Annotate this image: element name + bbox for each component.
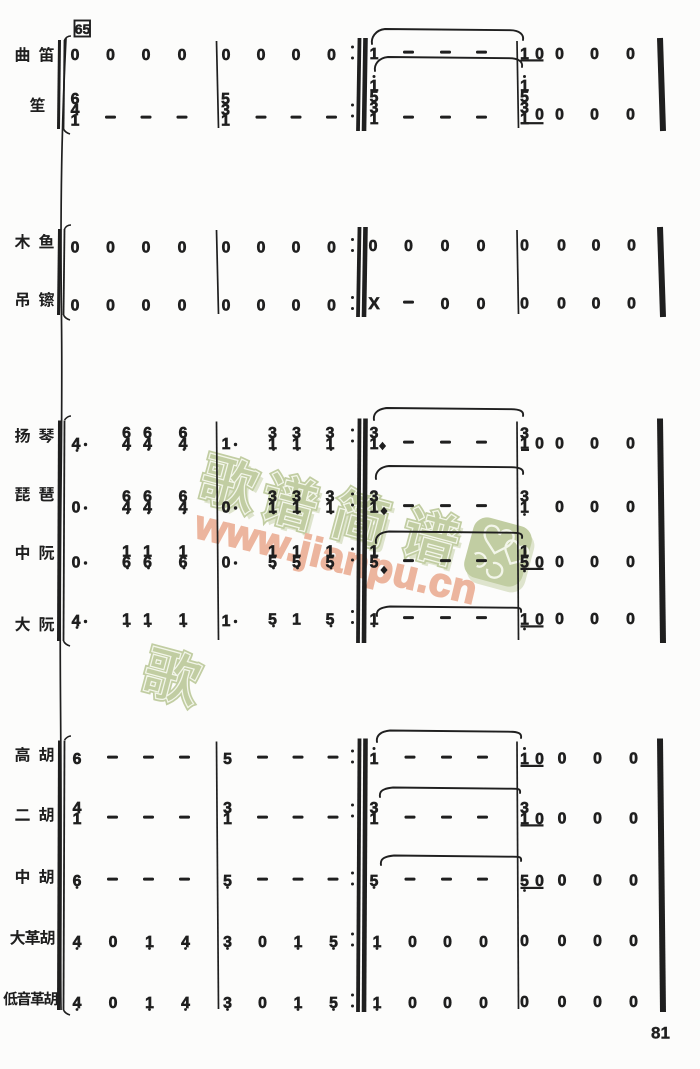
svg-text:0: 0 [555, 436, 564, 453]
svg-text:0: 0 [626, 46, 635, 63]
svg-text:0: 0 [408, 995, 417, 1012]
svg-text:0: 0 [178, 240, 187, 257]
svg-text:0: 0 [257, 47, 266, 64]
svg-text:6: 6 [143, 555, 152, 572]
svg-text:0: 0 [593, 873, 602, 890]
svg-text:0: 0 [477, 238, 486, 255]
svg-text:0: 0 [258, 934, 267, 951]
svg-text:0: 0 [109, 995, 118, 1012]
svg-text:0: 0 [555, 611, 564, 628]
svg-text:1: 1 [370, 436, 379, 453]
svg-text:0: 0 [292, 47, 301, 64]
svg-text:0: 0 [558, 994, 567, 1011]
svg-text:0: 0 [535, 555, 544, 572]
svg-text:0: 0 [441, 238, 450, 255]
svg-text:0: 0 [555, 499, 564, 516]
svg-text:0: 0 [627, 296, 636, 313]
svg-text:0: 0 [626, 107, 635, 124]
svg-text:1: 1 [223, 811, 232, 828]
svg-text:0: 0 [535, 436, 544, 453]
svg-text:0: 0 [593, 811, 602, 828]
svg-text:1: 1 [520, 111, 529, 128]
svg-text:0: 0 [557, 238, 566, 255]
svg-text:0: 0 [257, 240, 266, 257]
svg-text:0: 0 [222, 500, 231, 517]
svg-text:0: 0 [71, 240, 80, 257]
svg-text:4: 4 [179, 436, 188, 453]
svg-text:4: 4 [122, 500, 131, 517]
svg-text:0: 0 [592, 296, 601, 313]
svg-text:1: 1 [73, 811, 82, 828]
svg-text:0: 0 [72, 500, 81, 517]
svg-text:0: 0 [327, 240, 336, 257]
svg-text:0: 0 [71, 47, 80, 64]
svg-text:0: 0 [520, 933, 529, 950]
svg-text:1: 1 [370, 500, 379, 517]
svg-text:0: 0 [479, 995, 488, 1012]
svg-text:6: 6 [179, 555, 188, 572]
svg-text:1: 1 [326, 500, 335, 517]
svg-text:6: 6 [73, 751, 82, 768]
svg-text:1: 1 [370, 811, 379, 828]
svg-text:6: 6 [122, 555, 131, 572]
svg-text:0: 0 [558, 873, 567, 890]
svg-text:4: 4 [179, 500, 188, 517]
svg-text:1: 1 [268, 500, 277, 517]
svg-text:0: 0 [222, 555, 231, 572]
svg-text:1: 1 [370, 111, 379, 128]
svg-text:0: 0 [443, 934, 452, 951]
svg-text:81: 81 [651, 1024, 670, 1043]
svg-text:0: 0 [629, 933, 638, 950]
svg-text:5: 5 [292, 555, 301, 572]
svg-text:0: 0 [629, 811, 638, 828]
svg-text:65: 65 [75, 21, 91, 37]
svg-text:0: 0 [520, 296, 529, 313]
svg-text:0: 0 [593, 933, 602, 950]
svg-text:5: 5 [370, 555, 379, 572]
svg-text:0: 0 [520, 994, 529, 1011]
svg-text:0: 0 [106, 240, 115, 257]
svg-text:0: 0 [106, 47, 115, 64]
svg-text:0: 0 [558, 811, 567, 828]
svg-text:0: 0 [327, 47, 336, 64]
svg-text:0: 0 [590, 554, 599, 571]
svg-text:0: 0 [257, 298, 266, 315]
svg-text:0: 0 [629, 873, 638, 890]
svg-text:0: 0 [593, 751, 602, 768]
svg-text:5: 5 [223, 751, 232, 768]
svg-text:4: 4 [143, 500, 152, 517]
svg-text:0: 0 [590, 499, 599, 516]
svg-text:0: 0 [558, 933, 567, 950]
svg-text:1: 1 [221, 113, 230, 130]
svg-text:0: 0 [626, 499, 635, 516]
svg-text:1: 1 [370, 46, 379, 63]
svg-text:0: 0 [222, 298, 231, 315]
svg-text:0: 0 [629, 751, 638, 768]
svg-text:0: 0 [222, 240, 231, 257]
svg-text:1: 1 [222, 613, 231, 630]
svg-text:1: 1 [292, 436, 301, 453]
svg-text:0: 0 [408, 934, 417, 951]
svg-text:0: 0 [441, 296, 450, 313]
svg-text:0: 0 [555, 554, 564, 571]
svg-text:1: 1 [222, 436, 231, 453]
svg-text:1: 1 [292, 500, 301, 517]
svg-text:0: 0 [626, 436, 635, 453]
svg-text:4: 4 [122, 436, 131, 453]
svg-text:1: 1 [326, 436, 335, 453]
svg-text:0: 0 [555, 107, 564, 124]
svg-text:0: 0 [477, 296, 486, 313]
svg-text:0: 0 [443, 995, 452, 1012]
svg-text:0: 0 [557, 296, 566, 313]
svg-text:0: 0 [178, 298, 187, 315]
svg-text:0: 0 [178, 47, 187, 64]
svg-text:0: 0 [590, 107, 599, 124]
svg-text:0: 0 [142, 240, 151, 257]
svg-text:0: 0 [590, 436, 599, 453]
svg-text:0: 0 [593, 994, 602, 1011]
svg-text:0: 0 [479, 934, 488, 951]
svg-text:1: 1 [268, 436, 277, 453]
svg-text:0: 0 [592, 238, 601, 255]
svg-text:0: 0 [520, 238, 529, 255]
svg-text:0: 0 [292, 298, 301, 315]
svg-text:0: 0 [327, 298, 336, 315]
svg-text:0: 0 [72, 555, 81, 572]
svg-text:0: 0 [369, 238, 378, 255]
svg-text:0: 0 [626, 611, 635, 628]
svg-text:1: 1 [292, 612, 301, 629]
svg-text:0: 0 [106, 298, 115, 315]
svg-text:0: 0 [629, 994, 638, 1011]
svg-text:0: 0 [558, 751, 567, 768]
svg-text:1: 1 [370, 751, 379, 768]
svg-text:0: 0 [292, 240, 301, 257]
svg-text:0: 0 [404, 238, 413, 255]
svg-text:5: 5 [326, 555, 335, 572]
svg-text:0: 0 [222, 47, 231, 64]
svg-text:0: 0 [71, 298, 80, 315]
svg-text:0: 0 [590, 611, 599, 628]
svg-text:X: X [368, 294, 380, 313]
svg-text:0: 0 [109, 934, 118, 951]
svg-text:0: 0 [535, 107, 544, 124]
svg-text:0: 0 [555, 46, 564, 63]
svg-text:5: 5 [268, 555, 277, 572]
svg-text:1: 1 [71, 113, 80, 130]
svg-text:0: 0 [258, 995, 267, 1012]
svg-text:0: 0 [590, 46, 599, 63]
svg-text:0: 0 [627, 238, 636, 255]
svg-text:0: 0 [142, 47, 151, 64]
svg-text:0: 0 [142, 298, 151, 315]
svg-text:0: 0 [626, 554, 635, 571]
svg-text:4: 4 [143, 436, 152, 453]
